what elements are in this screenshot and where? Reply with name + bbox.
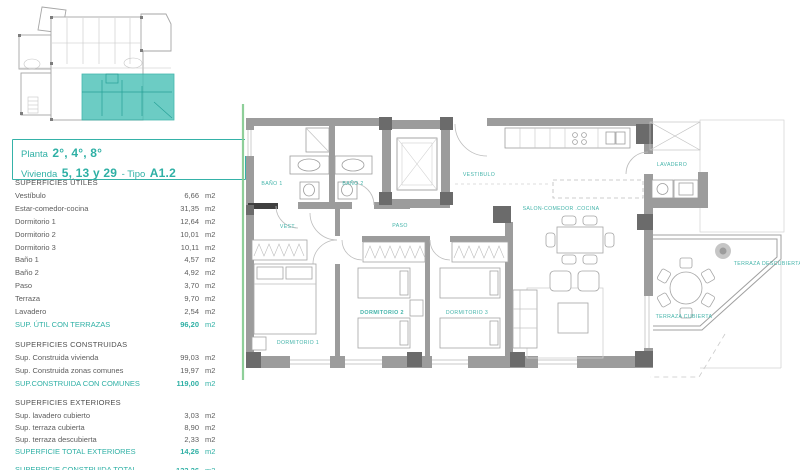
row-value: 4,92	[163, 268, 199, 277]
row-label: Vestíbulo	[15, 191, 163, 200]
row-label: Sup. terraza descubierta	[15, 435, 163, 444]
label-paso: PASO	[392, 223, 407, 229]
table-row: Baño 2 4,92 m2	[15, 268, 227, 281]
row-value: 31,35	[163, 204, 199, 213]
nightstand	[410, 300, 423, 316]
row-value: 119,00	[163, 379, 199, 388]
utiles-rows: Vestíbulo 6,66 m2 Estar-comedor-cocina 3…	[15, 191, 227, 333]
row-unit: m2	[199, 320, 227, 329]
armchair	[550, 271, 571, 291]
row-unit: m2	[199, 255, 227, 264]
lavadero-door-arc	[626, 152, 648, 174]
table-row: Baño 1 4,57 m2	[15, 255, 227, 268]
row-unit: m2	[199, 411, 227, 420]
key-plan-highlight	[82, 74, 174, 120]
row-unit: m2	[199, 447, 227, 456]
row-unit: m2	[199, 294, 227, 303]
vest-door-arc	[310, 213, 337, 240]
bed-double-dorm1	[252, 264, 316, 350]
row-value: 10,11	[163, 243, 199, 252]
label-vestibulo: VESTIBULO	[463, 172, 495, 178]
grand-total-unit: m2	[199, 466, 227, 470]
planta-prefix: Planta	[21, 149, 48, 160]
row-unit: m2	[199, 268, 227, 277]
table-row: Sup. terraza cubierta 8,90 m2	[15, 423, 227, 435]
table-row: SUPERFICIE TOTAL EXTERIORES 14,26 m2	[15, 447, 227, 459]
living-furniture	[513, 216, 614, 358]
grand-total-value: 133,26	[163, 466, 199, 470]
grand-total-label: SUPERFICIE CONSTRUIDA TOTAL CON SUPERFIC…	[15, 466, 163, 470]
table-row: Lavadero 2,54 m2	[15, 307, 227, 320]
row-value: 12,64	[163, 217, 199, 226]
label-bano1: BAÑO 1	[261, 180, 282, 187]
terrace	[650, 235, 781, 377]
lavadero-area	[650, 122, 700, 198]
row-value: 14,26	[163, 447, 199, 456]
row-label: Sup. terraza cubierta	[15, 423, 163, 432]
row-label: Dormitorio 1	[15, 217, 163, 226]
row-unit: m2	[199, 307, 227, 316]
label-salon: SALON-COMEDOR .COCINA	[523, 206, 600, 212]
row-unit: m2	[199, 379, 227, 388]
row-value: 96,20	[163, 320, 199, 329]
open-yard-outline	[700, 120, 784, 232]
wardrobe-vest	[252, 240, 307, 260]
title-line-planta: Planta 2°, 4°, 8°	[21, 143, 237, 163]
dining-table-set	[546, 216, 614, 264]
row-unit: m2	[199, 217, 227, 226]
row-label: SUP.CONSTRUIDA CON COMUNES	[15, 379, 163, 388]
row-label: Estar-comedor-cocina	[15, 204, 163, 213]
row-label: Paso	[15, 281, 163, 290]
floor-plan: BAÑO 1 BAÑO 2 VESTIBULO VEST. PASO SALON…	[240, 85, 800, 470]
floor-plan-sheet: Planta 2°, 4°, 8° Vivienda 5, 13 y 29 - …	[0, 0, 800, 470]
beds-dorm3	[440, 268, 500, 348]
wardrobe-dorm3	[452, 242, 508, 262]
table-row: Vestíbulo 6,66 m2	[15, 191, 227, 204]
sofa	[513, 290, 537, 348]
row-label: Dormitorio 2	[15, 230, 163, 239]
row-label: SUPERFICIE TOTAL EXTERIORES	[15, 447, 163, 456]
planta-floors: 2°, 4°, 8°	[52, 146, 102, 160]
surface-tables: SUPERFICIES ÚTILES Vestíbulo 6,66 m2 Est…	[15, 178, 227, 470]
dorm1-door-arc	[313, 240, 337, 264]
roof-projection-dashed	[650, 334, 725, 377]
construidas-header: SUPERFICIES CONSTRUIDAS	[15, 340, 227, 349]
label-terraza-descubierta: TERRAZA DESCUBIERTA	[734, 261, 800, 267]
table-row: Sup. Construida zonas comunes 19,97 m2	[15, 366, 227, 379]
shower	[306, 128, 329, 152]
washing-machine	[652, 180, 673, 198]
row-label: Dormitorio 3	[15, 243, 163, 252]
nightstand	[252, 337, 266, 350]
grand-total-row: SUPERFICIE CONSTRUIDA TOTAL CON SUPERFIC…	[15, 466, 227, 470]
table-row: Sup. terraza descubierta 2,33 m2	[15, 435, 227, 447]
row-label: Sup. lavadero cubierto	[15, 411, 163, 420]
row-label: SUP. ÚTIL CON TERRAZAS	[15, 320, 163, 329]
label-dorm1: DORMITORIO 1	[277, 340, 319, 346]
table-row: Sup. Construida vivienda 99,03 m2	[15, 353, 227, 366]
key-plan	[6, 2, 178, 128]
bano1-toilet	[300, 182, 319, 199]
label-dorm2: DORMITORIO 2	[360, 310, 404, 316]
dorm2-door-arc	[342, 240, 362, 260]
kitchen-island-dashed	[553, 180, 643, 198]
row-unit: m2	[199, 191, 227, 200]
row-label: Sup. Construida vivienda	[15, 353, 163, 362]
table-row: Terraza 9,70 m2	[15, 294, 227, 307]
row-unit: m2	[199, 204, 227, 213]
row-unit: m2	[199, 423, 227, 432]
label-terraza-cubierta: TERRAZA CUBIERTA	[656, 314, 713, 320]
label-vest: VEST.	[280, 224, 296, 230]
kitchen-counter	[455, 128, 643, 198]
table-row: SUP.CONSTRUIDA CON COMUNES 119,00 m2	[15, 379, 227, 392]
row-label: Lavadero	[15, 307, 163, 316]
armchair	[578, 271, 599, 291]
table-row: Sup. lavadero cubierto 3,03 m2	[15, 411, 227, 423]
bedroom-furniture	[252, 240, 508, 350]
row-label: Baño 2	[15, 268, 163, 277]
table-row: SUP. ÚTIL CON TERRAZAS 96,20 m2	[15, 320, 227, 333]
table-row: Paso 3,70 m2	[15, 281, 227, 294]
row-value: 8,90	[163, 423, 199, 432]
row-value: 2,33	[163, 435, 199, 444]
table-row: Dormitorio 2 10,01 m2	[15, 230, 227, 243]
row-unit: m2	[199, 435, 227, 444]
wardrobe-dorm2	[363, 242, 425, 262]
row-value: 9,70	[163, 294, 199, 303]
label-bano2: BAÑO 2	[342, 180, 363, 187]
row-value: 10,01	[163, 230, 199, 239]
exteriores-rows: Sup. lavadero cubierto 3,03 m2 Sup. terr…	[15, 411, 227, 458]
floor-plan-svg: BAÑO 1 BAÑO 2 VESTIBULO VEST. PASO SALON…	[240, 85, 800, 470]
row-value: 99,03	[163, 353, 199, 362]
row-unit: m2	[199, 230, 227, 239]
label-dorm3: DORMITORIO 3	[446, 310, 488, 316]
row-unit: m2	[199, 243, 227, 252]
table-row: Dormitorio 1 12,64 m2	[15, 217, 227, 230]
bano1-sink-counter	[290, 156, 329, 174]
construidas-rows: Sup. Construida vivienda 99,03 m2 Sup. C…	[15, 353, 227, 392]
terrace-table-set	[657, 258, 716, 318]
coffee-table	[558, 303, 588, 333]
row-label: Sup. Construida zonas comunes	[15, 366, 163, 375]
dorm3-door-arc	[430, 240, 450, 260]
unit-title-box: Planta 2°, 4°, 8° Vivienda 5, 13 y 29 - …	[12, 139, 246, 180]
entrance-door-arc	[455, 124, 487, 156]
window-left	[245, 130, 255, 156]
label-lavadero: LAVADERO	[657, 162, 687, 168]
row-value: 3,03	[163, 411, 199, 420]
elevator-shaft	[379, 117, 453, 208]
row-unit: m2	[199, 281, 227, 290]
row-value: 3,70	[163, 281, 199, 290]
utiles-header: SUPERFICIES ÚTILES	[15, 178, 227, 187]
terrace-door-window	[641, 296, 654, 348]
row-unit: m2	[199, 353, 227, 362]
exteriores-header: SUPERFICIES EXTERIORES	[15, 398, 227, 407]
row-value: 19,97	[163, 366, 199, 375]
row-value: 6,66	[163, 191, 199, 200]
row-value: 4,57	[163, 255, 199, 264]
table-row: Estar-comedor-cocina 31,35 m2	[15, 204, 227, 217]
row-label: Terraza	[15, 294, 163, 303]
row-label: Baño 1	[15, 255, 163, 264]
row-unit: m2	[199, 366, 227, 375]
bano2-sink-counter	[335, 156, 372, 174]
beds-dorm2	[358, 268, 423, 348]
table-row: Dormitorio 3 10,11 m2	[15, 243, 227, 256]
row-value: 2,54	[163, 307, 199, 316]
plant	[715, 243, 731, 259]
